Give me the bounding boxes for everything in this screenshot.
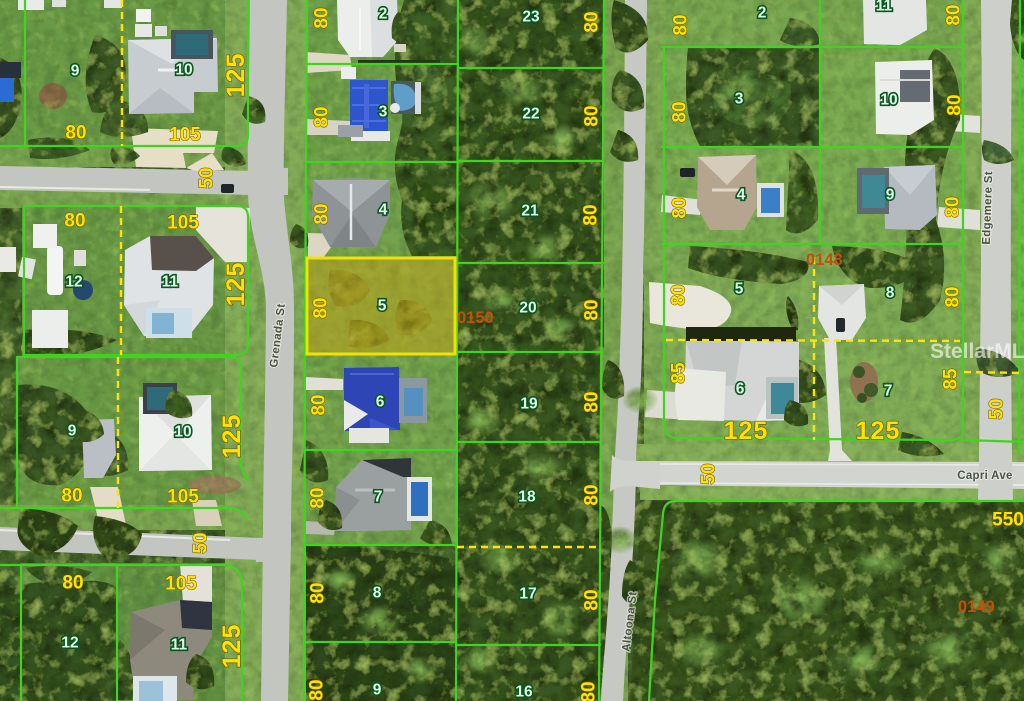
svg-text:10: 10 — [174, 424, 191, 441]
svg-text:Capri Ave: Capri Ave — [957, 470, 1013, 482]
svg-text:4: 4 — [379, 202, 388, 219]
svg-text:9: 9 — [886, 187, 895, 204]
svg-text:20: 20 — [519, 300, 536, 317]
svg-text:4: 4 — [737, 187, 746, 204]
svg-text:50: 50 — [699, 463, 720, 484]
svg-text:19: 19 — [520, 396, 538, 413]
svg-text:9: 9 — [71, 63, 80, 80]
svg-text:11: 11 — [162, 274, 179, 291]
svg-text:80: 80 — [944, 4, 965, 25]
svg-text:3: 3 — [379, 104, 388, 121]
svg-text:6: 6 — [376, 394, 385, 411]
svg-text:80: 80 — [579, 681, 600, 701]
svg-text:80: 80 — [582, 11, 603, 32]
svg-text:85: 85 — [941, 368, 962, 390]
svg-text:80: 80 — [308, 582, 329, 603]
svg-text:105: 105 — [169, 125, 201, 146]
svg-text:125: 125 — [724, 417, 769, 445]
svg-text:2: 2 — [379, 6, 388, 23]
svg-text:3: 3 — [735, 91, 744, 108]
svg-text:12: 12 — [65, 274, 82, 291]
svg-text:0148: 0148 — [806, 251, 843, 269]
svg-text:80: 80 — [582, 105, 603, 126]
svg-text:80: 80 — [943, 196, 964, 217]
svg-text:6: 6 — [736, 381, 745, 398]
svg-text:21: 21 — [521, 203, 539, 220]
svg-text:5: 5 — [378, 298, 387, 315]
svg-text:80: 80 — [582, 299, 603, 320]
svg-text:0149: 0149 — [958, 598, 995, 616]
svg-text:23: 23 — [522, 9, 540, 26]
svg-text:16: 16 — [515, 684, 533, 701]
svg-text:80: 80 — [309, 394, 330, 415]
svg-text:125: 125 — [218, 624, 246, 669]
svg-text:80: 80 — [311, 297, 332, 318]
svg-text:80: 80 — [669, 284, 690, 305]
svg-text:105: 105 — [167, 213, 199, 234]
svg-text:125: 125 — [222, 53, 250, 98]
svg-text:85: 85 — [669, 362, 690, 384]
svg-text:80: 80 — [670, 101, 691, 122]
svg-text:5: 5 — [735, 281, 744, 298]
svg-text:2: 2 — [758, 5, 767, 22]
svg-text:22: 22 — [522, 106, 539, 123]
svg-text:80: 80 — [61, 486, 82, 507]
svg-text:80: 80 — [308, 487, 329, 508]
svg-text:9: 9 — [373, 682, 382, 699]
svg-text:80: 80 — [62, 573, 83, 594]
svg-text:80: 80 — [312, 106, 333, 127]
svg-text:80: 80 — [582, 589, 603, 610]
svg-text:12: 12 — [61, 635, 78, 652]
svg-text:17: 17 — [519, 586, 536, 603]
svg-text:10: 10 — [175, 62, 192, 79]
svg-text:125: 125 — [222, 262, 250, 307]
svg-text:11: 11 — [876, 0, 893, 15]
svg-text:7: 7 — [374, 489, 383, 506]
svg-text:80: 80 — [312, 7, 333, 28]
svg-text:Edgemere St: Edgemere St — [981, 171, 996, 245]
svg-text:80: 80 — [65, 123, 86, 144]
svg-text:125: 125 — [856, 417, 901, 445]
svg-text:50: 50 — [987, 398, 1008, 419]
svg-text:80: 80 — [670, 197, 691, 218]
svg-text:8: 8 — [373, 585, 382, 602]
svg-text:125: 125 — [218, 414, 246, 459]
svg-text:11: 11 — [171, 637, 188, 654]
svg-text:0150: 0150 — [457, 309, 494, 327]
svg-text:80: 80 — [307, 679, 328, 700]
svg-text:80: 80 — [64, 211, 85, 232]
svg-text:80: 80 — [943, 286, 964, 307]
svg-text:105: 105 — [165, 574, 197, 595]
svg-text:50: 50 — [197, 167, 218, 188]
svg-text:9: 9 — [68, 423, 77, 440]
svg-text:80: 80 — [671, 14, 692, 35]
svg-text:StellarMLS: StellarMLS — [930, 340, 1024, 363]
svg-text:80: 80 — [312, 203, 333, 224]
svg-text:80: 80 — [581, 204, 602, 225]
svg-text:80: 80 — [582, 484, 603, 505]
svg-text:8: 8 — [886, 285, 895, 302]
svg-text:10: 10 — [880, 92, 897, 109]
svg-text:550: 550 — [992, 510, 1024, 531]
svg-text:50: 50 — [191, 532, 212, 553]
svg-text:80: 80 — [582, 391, 603, 412]
svg-text:80: 80 — [945, 94, 966, 115]
svg-text:7: 7 — [884, 383, 893, 400]
svg-text:105: 105 — [167, 487, 199, 508]
svg-text:18: 18 — [518, 489, 536, 506]
